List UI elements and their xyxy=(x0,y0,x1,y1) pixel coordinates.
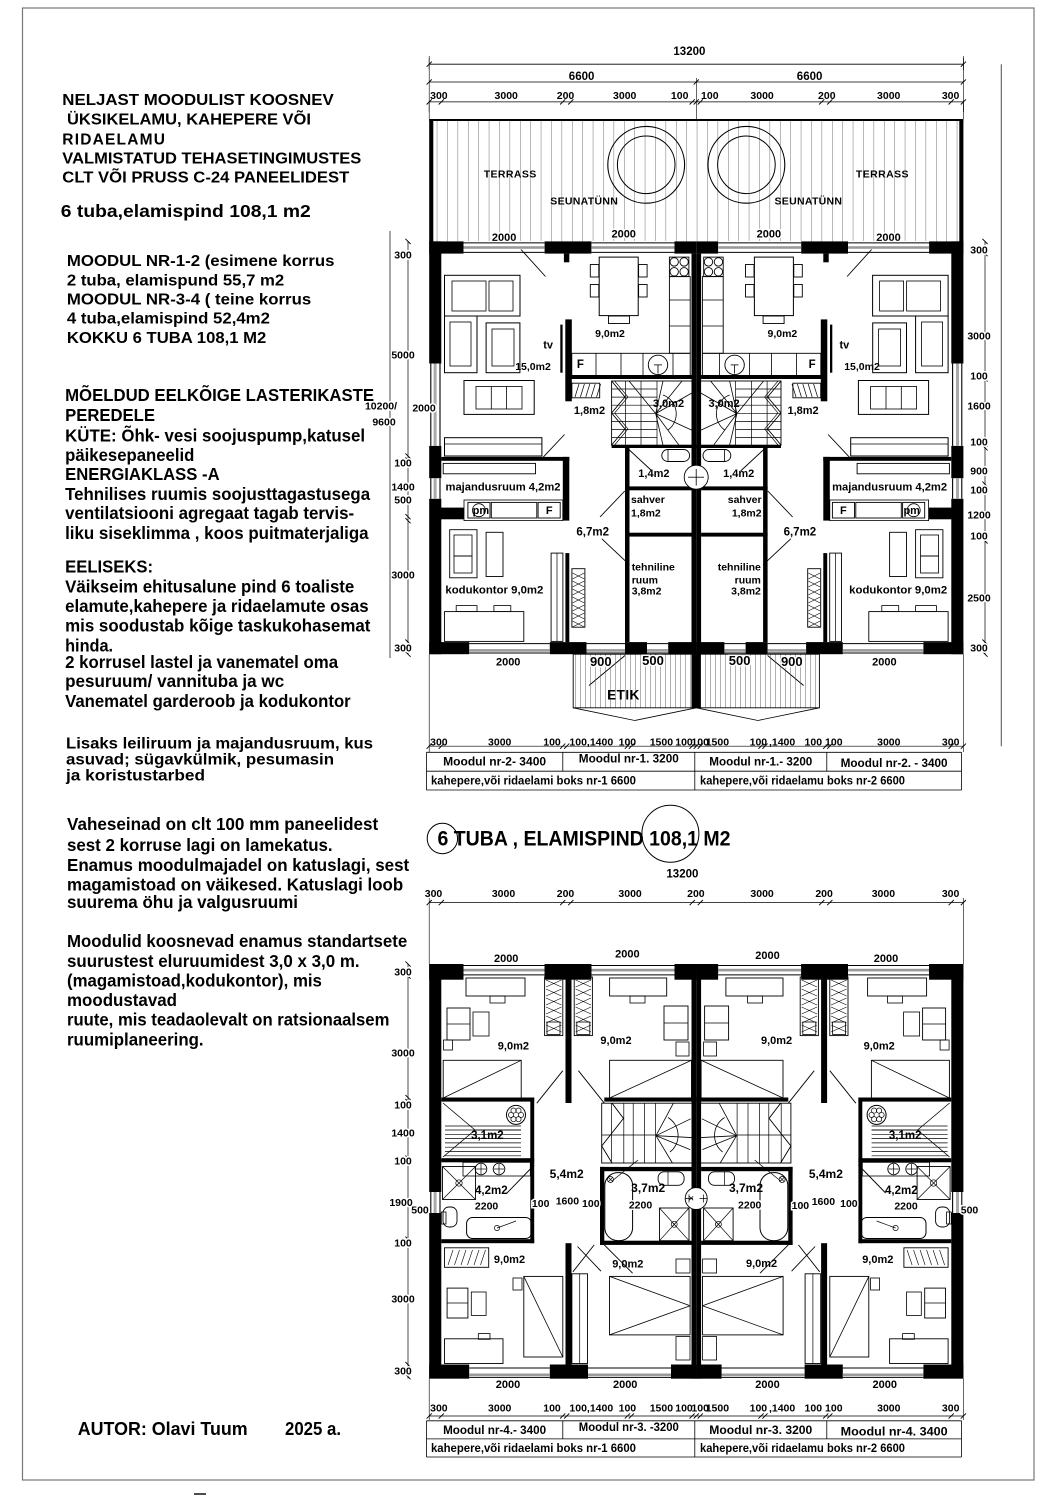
svg-text:13200: 13200 xyxy=(673,46,705,58)
svg-text:kodukontor 9,0m2: kodukontor 9,0m2 xyxy=(849,585,947,597)
svg-text:3,1m2: 3,1m2 xyxy=(889,1130,922,1142)
svg-text:1400: 1400 xyxy=(391,482,415,494)
svg-text:ruumiplaneering.: ruumiplaneering. xyxy=(67,1030,204,1050)
svg-text:300: 300 xyxy=(394,967,412,979)
svg-text:asuvad; sügavkülmik, pesumasin: asuvad; sügavkülmik, pesumasin xyxy=(66,752,334,769)
svg-text:3,1m2: 3,1m2 xyxy=(471,1130,504,1142)
svg-text:300: 300 xyxy=(942,90,960,102)
svg-text:NELJAST MOODULIST KOOSNEV: NELJAST MOODULIST KOOSNEV xyxy=(62,92,334,109)
svg-text:(magamistoad,kodukontor), mis: (magamistoad,kodukontor), mis xyxy=(67,971,322,991)
svg-text:100: 100 xyxy=(970,531,988,543)
svg-text:2000: 2000 xyxy=(613,1379,637,1391)
svg-text:4,2m2: 4,2m2 xyxy=(475,1185,508,1197)
svg-text:1500: 1500 xyxy=(706,1403,730,1415)
svg-text:1,8m2: 1,8m2 xyxy=(787,405,818,417)
svg-text:MOODUL NR-1-2 (esimene korrus: MOODUL NR-1-2 (esimene korrus xyxy=(67,253,335,270)
svg-text:3000: 3000 xyxy=(492,888,516,900)
svg-text:Moodul nr-2- 3400: Moodul nr-2- 3400 xyxy=(443,756,546,768)
svg-text:TERRASS: TERRASS xyxy=(856,169,909,181)
svg-text:2000: 2000 xyxy=(755,1379,779,1391)
svg-text:500: 500 xyxy=(642,653,664,668)
svg-text:Moodul nr-4. 3400: Moodul nr-4. 3400 xyxy=(841,1427,948,1439)
svg-text:F: F xyxy=(840,505,847,517)
svg-text:Moodul nr-3. 3200: Moodul nr-3. 3200 xyxy=(709,1425,812,1437)
svg-text:1500: 1500 xyxy=(650,1403,674,1415)
svg-text:100: 100 xyxy=(675,1403,693,1415)
svg-text:6 TUBA , ELAMISPIND 108,1 M2: 6 TUBA , ELAMISPIND 108,1 M2 xyxy=(438,827,731,851)
svg-text:3,8m2: 3,8m2 xyxy=(731,586,761,598)
svg-text:Moodul nr-1.- 3200: Moodul nr-1.- 3200 xyxy=(709,756,812,768)
svg-text:majandusruum 4,2m2: majandusruum 4,2m2 xyxy=(832,482,947,494)
svg-text:kahepere,või ridaelami boks nr: kahepere,või ridaelami boks nr-1 6600 xyxy=(431,1443,636,1455)
svg-text:300: 300 xyxy=(942,888,960,900)
svg-text:3,0m2: 3,0m2 xyxy=(708,398,739,410)
svg-text:1,4m2: 1,4m2 xyxy=(638,468,669,480)
svg-text:F: F xyxy=(546,505,553,517)
svg-text:9,0m2: 9,0m2 xyxy=(494,1254,525,1266)
svg-text:100: 100 xyxy=(394,1156,412,1168)
svg-text:kahepere,või ridaelamu boks nr: kahepere,või ridaelamu boks nr-2 6600 xyxy=(700,775,905,787)
svg-text:9600: 9600 xyxy=(372,417,396,429)
svg-text:100: 100 xyxy=(970,371,988,383)
svg-text:3000: 3000 xyxy=(618,888,642,900)
svg-text:100: 100 xyxy=(543,737,561,749)
svg-text:2000: 2000 xyxy=(611,229,635,241)
svg-text:Vanematel garderoob ja kodukon: Vanematel garderoob ja kodukontor xyxy=(65,691,351,711)
svg-text:1,4m2: 1,4m2 xyxy=(723,468,754,480)
svg-text:300: 300 xyxy=(970,245,988,257)
svg-text:3000: 3000 xyxy=(877,737,901,749)
svg-text:9,0m2: 9,0m2 xyxy=(498,1041,529,1053)
svg-text:6600: 6600 xyxy=(569,71,595,83)
svg-text:100: 100 xyxy=(671,90,689,102)
svg-text:pm: pm xyxy=(903,505,920,517)
svg-text:100: 100 xyxy=(543,1403,561,1415)
svg-text:2 korrusel lastel ja vanematel: 2 korrusel lastel ja vanematel oma xyxy=(65,652,338,672)
svg-text:ÜKSIKELAMU, KAHEPERE VÕI: ÜKSIKELAMU, KAHEPERE VÕI xyxy=(67,111,311,129)
svg-text:3000: 3000 xyxy=(391,1048,415,1060)
svg-text:2200: 2200 xyxy=(475,1200,499,1212)
svg-text:Enamus moodulmajadel on katusl: Enamus moodulmajadel on katuslagi, sest xyxy=(67,855,409,875)
svg-text:300: 300 xyxy=(425,888,443,900)
svg-text:3000: 3000 xyxy=(391,1294,415,1306)
svg-text:100,1400: 100,1400 xyxy=(569,737,613,749)
svg-text:2200: 2200 xyxy=(894,1200,918,1212)
svg-text:ETIK: ETIK xyxy=(607,688,640,703)
svg-text:100: 100 xyxy=(805,737,823,749)
svg-text:3000: 3000 xyxy=(750,90,774,102)
svg-text:ruute, mis teadaolevalt on rat: ruute, mis teadaolevalt on ratsionaalsem xyxy=(67,1010,389,1030)
svg-text:100,1400: 100,1400 xyxy=(569,1403,613,1415)
svg-text:100: 100 xyxy=(619,737,637,749)
svg-text:9,0m2: 9,0m2 xyxy=(746,1258,777,1270)
svg-text:5,4m2: 5,4m2 xyxy=(550,1167,584,1181)
svg-text:100: 100 xyxy=(970,485,988,497)
svg-text:3000: 3000 xyxy=(488,1403,512,1415)
svg-text:100: 100 xyxy=(394,458,412,470)
svg-text:F: F xyxy=(577,359,584,371)
svg-text:15,0m2: 15,0m2 xyxy=(515,361,551,373)
svg-text:5,4m2: 5,4m2 xyxy=(809,1167,843,1181)
svg-text:3000: 3000 xyxy=(495,90,519,102)
svg-text:100: 100 xyxy=(394,1238,412,1250)
svg-text:pm: pm xyxy=(473,505,490,517)
svg-text:Vaheseinad on clt 100 mm pane: Vaheseinad on clt 100 mm paneelidest xyxy=(67,814,378,834)
svg-text:300: 300 xyxy=(430,90,448,102)
svg-text:9,0m2: 9,0m2 xyxy=(761,1035,792,1047)
svg-text:300: 300 xyxy=(394,250,412,262)
svg-text:100: 100 xyxy=(582,1198,600,1210)
svg-text:300: 300 xyxy=(970,643,988,655)
svg-text:1,8m2: 1,8m2 xyxy=(732,507,762,519)
svg-text:1400: 1400 xyxy=(391,1128,415,1140)
svg-text:elamute,kahepere ja ridaelamut: elamute,kahepere ja ridaelamute osas xyxy=(65,596,369,616)
svg-text:100: 100 xyxy=(825,737,843,749)
svg-text:6600: 6600 xyxy=(797,71,823,83)
svg-text:3,7m2: 3,7m2 xyxy=(631,1181,665,1195)
svg-text:100: 100 xyxy=(840,1198,858,1210)
svg-text:9,0m2: 9,0m2 xyxy=(768,328,798,340)
svg-text:ENERGIAKLASS -A: ENERGIAKLASS -A xyxy=(65,464,220,484)
svg-text:tv: tv xyxy=(840,340,851,352)
svg-text:1200: 1200 xyxy=(967,510,991,522)
svg-text:200: 200 xyxy=(687,888,705,900)
svg-text:2000: 2000 xyxy=(874,953,898,965)
svg-text:2000: 2000 xyxy=(496,1379,520,1391)
svg-text:100: 100 xyxy=(825,1403,843,1415)
svg-text:500: 500 xyxy=(411,1205,429,1217)
svg-text:6,7m2: 6,7m2 xyxy=(576,526,609,538)
svg-text:kahepere,või ridaelami boks nr: kahepere,või ridaelami boks nr-1 6600 xyxy=(431,775,636,787)
svg-text:1600: 1600 xyxy=(967,401,991,413)
svg-text:100: 100 xyxy=(701,90,719,102)
svg-text:kodukontor 9,0m2: kodukontor 9,0m2 xyxy=(445,585,543,597)
svg-text:200: 200 xyxy=(818,90,836,102)
svg-text:1600: 1600 xyxy=(812,1196,836,1208)
svg-text:2000: 2000 xyxy=(757,229,781,241)
svg-text:3000: 3000 xyxy=(391,570,415,582)
svg-text:MOODUL NR-3-4 ( teine korrus: MOODUL NR-3-4 ( teine korrus xyxy=(67,292,311,309)
svg-text:100: 100 xyxy=(792,1200,810,1212)
svg-text:900: 900 xyxy=(590,654,612,669)
svg-text:100: 100 xyxy=(750,1403,768,1415)
svg-text:4 tuba,elamispind 52,4m2: 4 tuba,elamispind 52,4m2 xyxy=(67,311,270,328)
svg-text:tehniline: tehniline xyxy=(632,561,675,573)
svg-text:,1400: ,1400 xyxy=(769,737,795,749)
svg-text:KOKKU 6 TUBA 108,1 M2: KOKKU 6 TUBA 108,1 M2 xyxy=(67,330,267,347)
svg-text:1,8m2: 1,8m2 xyxy=(574,405,605,417)
svg-text:1,8m2: 1,8m2 xyxy=(631,507,661,519)
svg-text:300: 300 xyxy=(394,643,412,655)
svg-text:Väikseim ehitusalune pind 6 to: Väikseim ehitusalune pind 6 toaliste xyxy=(65,576,354,596)
svg-text:13200: 13200 xyxy=(666,869,698,881)
svg-text:4,2m2: 4,2m2 xyxy=(885,1185,918,1197)
svg-text:3,8m2: 3,8m2 xyxy=(632,585,662,597)
svg-text:2000: 2000 xyxy=(412,403,436,415)
svg-text:Tehnilises ruumis soojusttagas: Tehnilises ruumis soojusttagastusega xyxy=(65,484,370,504)
svg-text:2000: 2000 xyxy=(615,948,639,960)
svg-text:suurema öhu ja valgusruumi: suurema öhu ja valgusruumi xyxy=(67,892,298,912)
svg-text:900: 900 xyxy=(970,466,988,478)
svg-text:3000: 3000 xyxy=(488,737,512,749)
svg-text:CLT VÕI PRUSS C-24 PANEELIDES: CLT VÕI PRUSS C-24 PANEELIDEST xyxy=(62,169,350,187)
svg-text:2000: 2000 xyxy=(755,950,779,962)
svg-text:3000: 3000 xyxy=(877,90,901,102)
svg-text:SEUNATÜNN: SEUNATÜNN xyxy=(774,195,842,208)
svg-text:100: 100 xyxy=(619,1403,637,1415)
svg-text:300: 300 xyxy=(942,1403,960,1415)
svg-text:100: 100 xyxy=(394,1100,412,1112)
svg-text:9,0m2: 9,0m2 xyxy=(864,1041,895,1053)
svg-text:tv: tv xyxy=(543,340,554,352)
svg-text:3,7m2: 3,7m2 xyxy=(729,1181,763,1195)
svg-text:RIDAELAMU: RIDAELAMU xyxy=(62,131,166,148)
svg-text:3,0m2: 3,0m2 xyxy=(653,398,684,410)
svg-text:1600: 1600 xyxy=(556,1196,580,1208)
svg-text:sahver: sahver xyxy=(728,494,762,506)
svg-text:9,0m2: 9,0m2 xyxy=(595,328,625,340)
svg-text:Moodulid koosnevad enamus stan: Moodulid koosnevad enamus standartsete xyxy=(67,931,407,951)
svg-text:moodustavad: moodustavad xyxy=(67,990,177,1010)
svg-text:500: 500 xyxy=(394,495,412,507)
svg-text:ja koristustarbed: ja koristustarbed xyxy=(65,768,205,785)
svg-text:SEUNATÜNN: SEUNATÜNN xyxy=(550,195,618,208)
svg-text:Lisaks leiliruum ja majandusru: Lisaks leiliruum ja majandusruum, kus xyxy=(66,736,373,753)
svg-text:300: 300 xyxy=(394,1366,412,1378)
svg-text:liku siseklimma , koos puitmat: liku siseklimma , koos puitmaterjaliga xyxy=(65,523,369,543)
svg-text:Moodul nr-1. 3200: Moodul nr-1. 3200 xyxy=(579,753,679,765)
svg-text:9,0m2: 9,0m2 xyxy=(862,1254,893,1266)
svg-text:suurustest eluruumidest 3,0 x: suurustest eluruumidest 3,0 x 3,0 m. xyxy=(67,951,360,971)
svg-text:9,0m2: 9,0m2 xyxy=(612,1258,643,1270)
svg-text:MÕELDUD EELKÕIGE LASTERIKASTE: MÕELDUD EELKÕIGE LASTERIKASTE xyxy=(65,384,374,405)
svg-text:Moodul nr-4.- 3400: Moodul nr-4.- 3400 xyxy=(443,1425,546,1437)
svg-text:2200: 2200 xyxy=(629,1200,653,1212)
svg-text:pesuruum/ vannituba ja wc: pesuruum/ vannituba ja wc xyxy=(65,671,284,691)
svg-text:3000: 3000 xyxy=(872,888,896,900)
svg-text:päikesepaneelid: päikesepaneelid xyxy=(65,445,194,465)
svg-text:2200: 2200 xyxy=(738,1200,762,1212)
svg-text:1900: 1900 xyxy=(389,1197,413,1209)
svg-text:2500: 2500 xyxy=(967,593,991,605)
svg-text:2000: 2000 xyxy=(494,953,518,965)
svg-text:900: 900 xyxy=(781,654,803,669)
svg-text:majandusruum 4,2m2: majandusruum 4,2m2 xyxy=(446,482,561,494)
svg-text:sahver: sahver xyxy=(631,494,665,506)
svg-text:kahepere,või ridaelamu boks nr: kahepere,või ridaelamu boks nr-2 6600 xyxy=(700,1443,905,1455)
svg-text:2 tuba, elamispund 55,7 m2: 2 tuba, elamispund 55,7 m2 xyxy=(67,272,284,289)
svg-text:TERRASS: TERRASS xyxy=(484,169,537,181)
svg-text:500: 500 xyxy=(729,653,751,668)
svg-text:F: F xyxy=(809,359,816,371)
svg-text:ventilatsiooni agregaat tagab: ventilatsiooni agregaat tagab tervis- xyxy=(65,503,354,523)
svg-text:mis soodustab kõige taskukohas: mis soodustab kõige taskukohasemat xyxy=(65,616,370,636)
svg-text:6 tuba,elamispind 108,1 m2: 6 tuba,elamispind 108,1 m2 xyxy=(61,201,311,221)
svg-text:3000: 3000 xyxy=(613,90,637,102)
svg-text:200: 200 xyxy=(557,90,575,102)
svg-text:1500: 1500 xyxy=(706,737,730,749)
svg-text:2000: 2000 xyxy=(496,657,520,669)
svg-text:PEREDELE: PEREDELE xyxy=(65,405,155,425)
svg-text:300: 300 xyxy=(430,1403,448,1415)
svg-text:3000: 3000 xyxy=(877,1403,901,1415)
svg-text:100: 100 xyxy=(532,1198,550,1210)
svg-text:200: 200 xyxy=(815,888,833,900)
svg-text:100: 100 xyxy=(970,437,988,449)
svg-text:300: 300 xyxy=(430,737,448,749)
svg-text:6,7m2: 6,7m2 xyxy=(784,526,817,538)
svg-text:15,0m2: 15,0m2 xyxy=(844,361,880,373)
svg-text:100: 100 xyxy=(675,737,693,749)
svg-text:Moodul nr-2. - 3400: Moodul nr-2. - 3400 xyxy=(841,758,948,770)
svg-text:,1400: ,1400 xyxy=(769,1403,795,1415)
svg-text:2025 a.: 2025 a. xyxy=(285,1418,341,1439)
svg-text:3000: 3000 xyxy=(750,888,774,900)
svg-text:tehniline: tehniline xyxy=(718,562,761,574)
svg-text:KÜTE: Õhk- vesi soojuspump,kat: KÜTE: Õhk- vesi soojuspump,katusel xyxy=(65,425,365,446)
svg-text:10200/: 10200/ xyxy=(365,401,397,413)
svg-text:5000: 5000 xyxy=(391,350,415,362)
svg-text:AUTOR: Olavi Tuum: AUTOR: Olavi Tuum xyxy=(78,1418,248,1439)
svg-text:1500: 1500 xyxy=(650,737,674,749)
svg-text:3000: 3000 xyxy=(967,331,991,343)
svg-text:500: 500 xyxy=(961,1205,979,1217)
svg-text:EELISEKS:: EELISEKS: xyxy=(65,556,153,576)
svg-text:2000: 2000 xyxy=(872,657,896,669)
svg-text:100: 100 xyxy=(805,1403,823,1415)
svg-text:sest 2 korruse lagi on lamekat: sest 2 korruse lagi on lamekatus. xyxy=(67,835,333,855)
svg-text:Moodul nr-3. -3200: Moodul nr-3. -3200 xyxy=(579,1422,679,1434)
svg-text:200: 200 xyxy=(557,888,575,900)
svg-text:9,0m2: 9,0m2 xyxy=(600,1035,631,1047)
svg-text:VALMISTATUD TEHASETINGIMUSTES: VALMISTATUD TEHASETINGIMUSTES xyxy=(62,150,361,167)
svg-text:2000: 2000 xyxy=(873,1379,897,1391)
